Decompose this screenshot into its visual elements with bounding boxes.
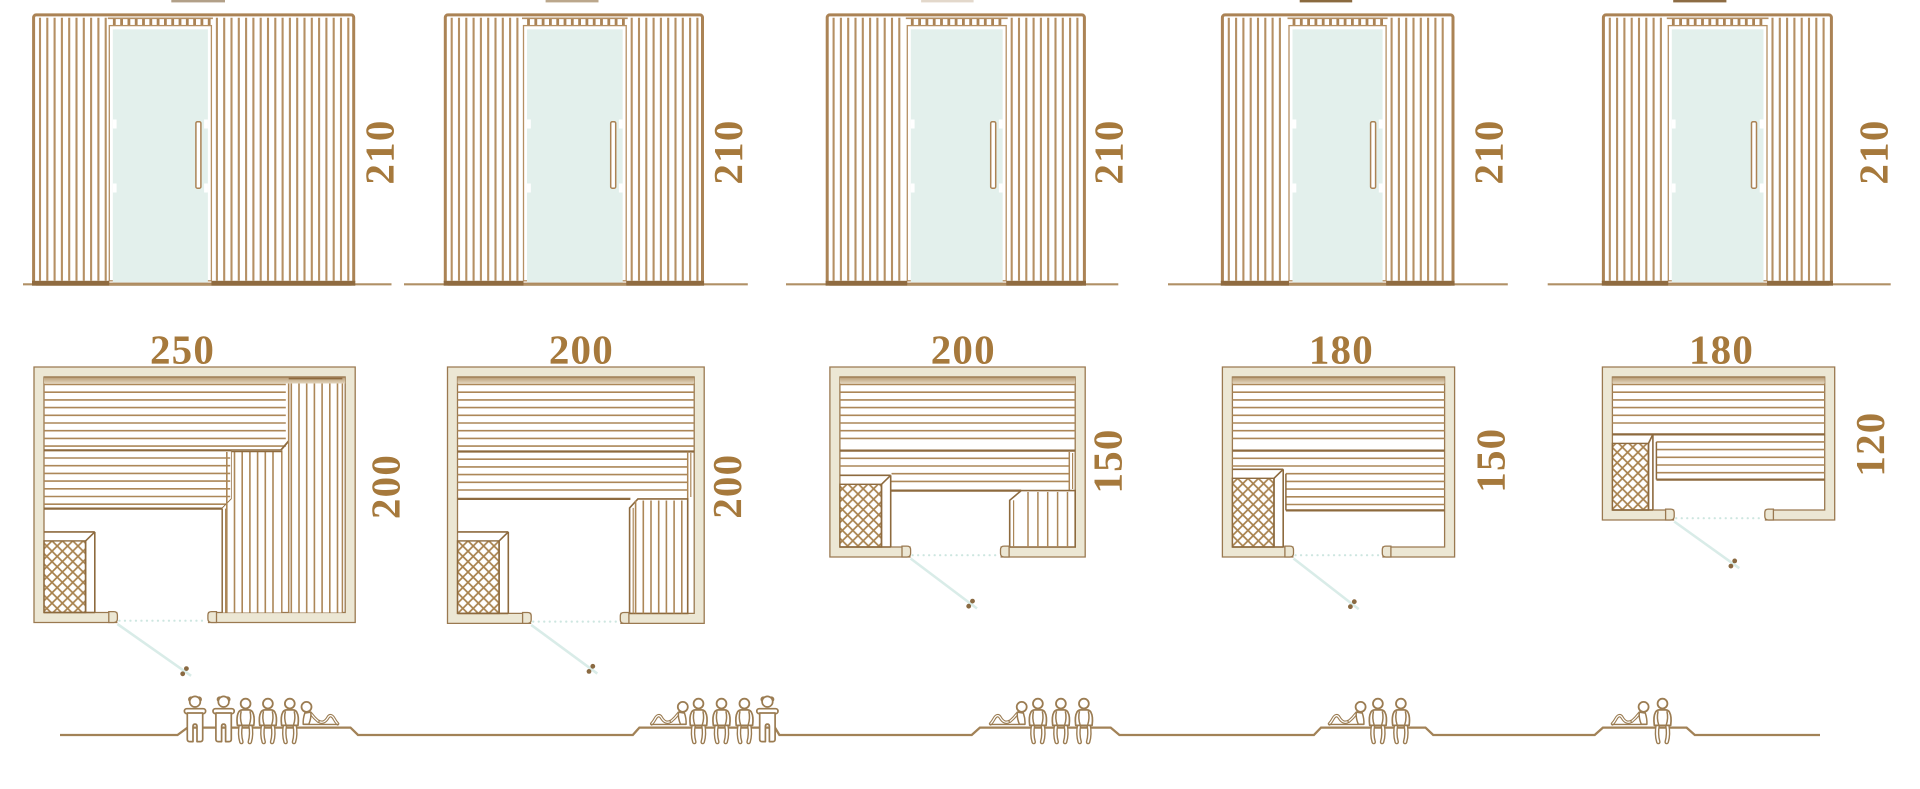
svg-text:210: 210: [1086, 119, 1132, 184]
svg-text:250: 250: [150, 327, 215, 373]
svg-text:200: 200: [704, 454, 750, 519]
svg-text:210: 210: [1851, 119, 1897, 184]
svg-text:210: 210: [357, 119, 403, 184]
svg-text:120: 120: [1847, 412, 1893, 477]
svg-text:180: 180: [1689, 327, 1754, 373]
svg-text:200: 200: [363, 454, 409, 519]
svg-text:150: 150: [1468, 428, 1514, 493]
svg-text:200: 200: [549, 327, 614, 373]
svg-text:150: 150: [1085, 428, 1131, 493]
svg-text:180: 180: [1309, 327, 1374, 373]
svg-text:210: 210: [1466, 119, 1512, 184]
svg-text:210: 210: [705, 119, 751, 184]
svg-text:200: 200: [931, 327, 996, 373]
